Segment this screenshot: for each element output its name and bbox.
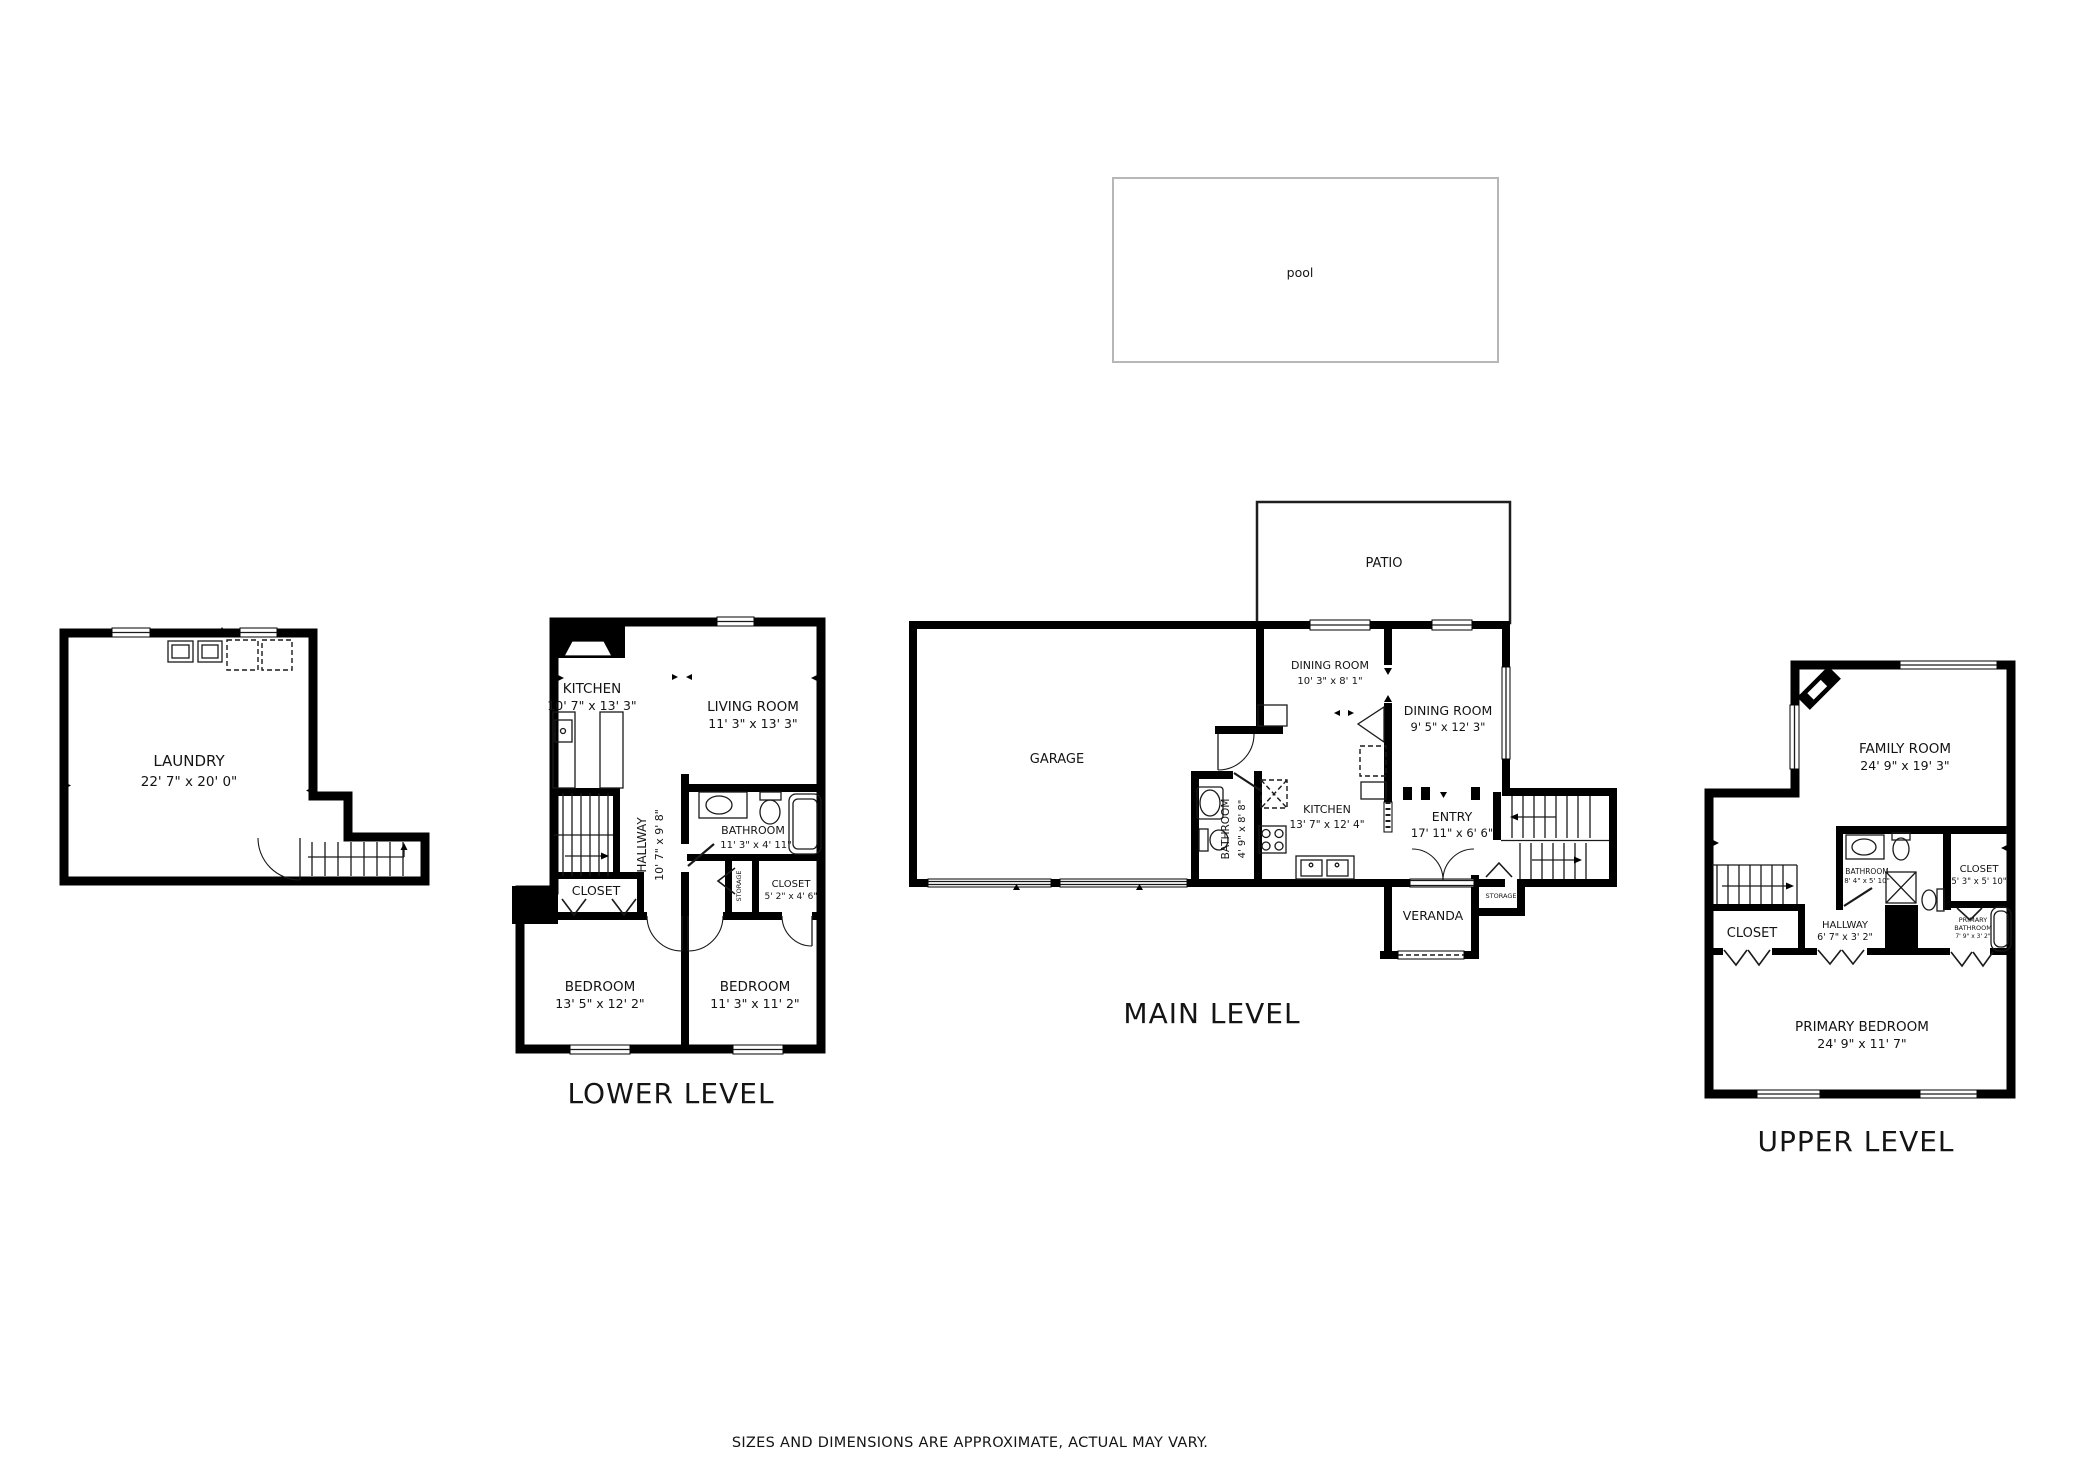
door-tick xyxy=(1713,840,1719,846)
room-label-living-room: LIVING ROOM xyxy=(707,699,799,715)
room-dims-bathroom: 4' 9" x 8' 8" xyxy=(1237,800,1248,859)
room-label-bathroom: BATHROOM xyxy=(1845,867,1888,876)
level-title-upper: UPPER LEVEL xyxy=(1757,1125,1954,1158)
bifold-door-icon xyxy=(1748,950,1770,965)
room-dims-dining2: 9' 5" x 12' 3" xyxy=(1411,720,1486,734)
bathtub-icon xyxy=(789,794,821,854)
bifold-door-icon xyxy=(1951,952,1972,966)
room-label-laundry: LAUNDRY xyxy=(153,752,225,770)
bifold-door-icon xyxy=(1842,950,1864,964)
double-door-icon xyxy=(1412,849,1474,880)
window-icon xyxy=(717,617,754,626)
room-dims-closet2: 5' 2" x 4' 6" xyxy=(765,892,818,902)
room-label-primary-bathroom-2: BATHROOM xyxy=(1954,924,1992,932)
kitchen-sink-icon xyxy=(1296,856,1354,879)
kitchen-counter-icon xyxy=(553,712,623,788)
stairs-icon xyxy=(1501,796,1609,879)
toilet-icon xyxy=(1892,833,1910,860)
room-label-closet2: CLOSET xyxy=(772,879,812,890)
fireplace-icon xyxy=(1797,666,1841,710)
room-label-kitchen: KITCHEN xyxy=(1303,803,1351,816)
main-level-plan: PATIO xyxy=(909,502,1617,1030)
room-label-primary-bedroom: PRIMARY BEDROOM xyxy=(1795,1019,1929,1035)
bifold-door-icon xyxy=(1724,950,1747,965)
room-label-storage: STORAGE xyxy=(1486,892,1517,900)
door-tick xyxy=(1384,668,1392,675)
door-tick xyxy=(1384,695,1392,702)
room-dims-entry: 17' 11" x 6' 6" xyxy=(1411,826,1493,840)
toilet-icon xyxy=(1922,889,1944,911)
door-arc-icon xyxy=(688,916,723,951)
floorplan-drawing: pool LAU xyxy=(0,0,2080,1471)
room-dims-bathroom: 11' 3" x 4' 11" xyxy=(720,840,792,851)
room-dims-laundry: 22' 7" x 20' 0" xyxy=(141,774,238,790)
cased-opening xyxy=(1384,802,1392,832)
door-tick xyxy=(686,674,692,680)
room-dims-kitchen: 10' 7" x 13' 3" xyxy=(547,698,636,713)
stove-icon xyxy=(1259,826,1286,853)
room-dims-closet1: 5' 3" x 5' 10" xyxy=(1951,877,2006,887)
room-label-bathroom: BATHROOM xyxy=(1220,799,1232,860)
room-label-dining2: DINING ROOM xyxy=(1404,703,1493,718)
pool-plan: pool xyxy=(1113,178,1498,362)
room-dims-family-room: 24' 9" x 19' 3" xyxy=(1860,758,1949,773)
stairs-icon xyxy=(308,842,408,876)
room-label-primary-bathroom-1: PRIMARY xyxy=(1959,916,1988,924)
veranda-opening xyxy=(1398,951,1464,959)
room-dims-living-room: 11' 3" x 13' 3" xyxy=(708,716,797,731)
room-label-garage: GARAGE xyxy=(1030,752,1084,767)
room-label-kitchen: KITCHEN xyxy=(563,681,622,697)
floorplan-page: pool LAU xyxy=(0,0,2080,1471)
pool-label: pool xyxy=(1287,265,1314,280)
room-label-hallway: HALLWAY xyxy=(1822,920,1869,931)
window-icon xyxy=(1310,620,1510,759)
stairs-icon xyxy=(1712,865,1797,904)
room-dims-kitchen: 13' 7" x 12' 4" xyxy=(1289,819,1364,831)
room-label-bathroom: BATHROOM xyxy=(721,824,785,837)
appliance-icon xyxy=(1261,780,1287,808)
laundry-plan: LAUNDRY 22' 7" x 20' 0" xyxy=(64,627,425,885)
room-label-entry: ENTRY xyxy=(1432,809,1473,824)
room-dims-bathroom: 8' 4" x 5' 10" xyxy=(1844,877,1890,885)
room-label-bedroom2: BEDROOM xyxy=(720,979,790,995)
toilet-icon xyxy=(760,792,781,824)
door-tick xyxy=(1334,710,1340,716)
fireplace-icon xyxy=(550,618,625,658)
lower-level-plan: KITCHEN 10' 7" x 13' 3" LIVING ROOM 11' … xyxy=(512,617,825,1110)
room-label-hallway: HALLWAY xyxy=(635,817,649,873)
room-label-closet2: CLOSET xyxy=(1727,926,1778,941)
level-title-main: MAIN LEVEL xyxy=(1123,997,1300,1030)
bathroom-sink-icon xyxy=(1846,835,1884,859)
upper-level-plan: FAMILY ROOM 24' 9" x 19' 3" BATHROOM 8' … xyxy=(1709,661,2011,1158)
door-chevron-icon xyxy=(1486,863,1512,877)
room-dims-primary-bedroom: 24' 9" x 11' 7" xyxy=(1817,1036,1906,1051)
door-arc-icon xyxy=(1218,734,1254,770)
corner-cabinet-icon xyxy=(1358,707,1384,742)
level-title-lower: LOWER LEVEL xyxy=(567,1077,774,1110)
room-label-patio: PATIO xyxy=(1366,556,1403,571)
door-tick xyxy=(2001,845,2007,851)
room-dims-dining1: 10' 3" x 8' 1" xyxy=(1297,676,1362,687)
washer-dryer-icon xyxy=(168,640,292,670)
room-label-storage: STORAGE xyxy=(735,871,743,902)
room-dims-hallway: 6' 7" x 3' 2" xyxy=(1817,932,1873,943)
shower-icon xyxy=(1886,872,1916,903)
door-tick xyxy=(1440,792,1447,798)
room-dims-bedroom1: 13' 5" x 12' 2" xyxy=(555,996,644,1011)
stairs-icon xyxy=(554,793,613,876)
room-label-closet1: CLOSET xyxy=(1960,864,2000,875)
door-tick xyxy=(1348,710,1354,716)
door-leaf-icon xyxy=(1844,888,1872,906)
door-tick xyxy=(672,674,678,680)
room-dims-primary-bathroom: 7' 9" x 3' 2" xyxy=(1955,933,1991,940)
room-label-veranda: VERANDA xyxy=(1403,908,1464,923)
door-tick xyxy=(811,675,817,681)
door-arc-icon xyxy=(647,916,682,951)
room-label-dining1: DINING ROOM xyxy=(1291,659,1369,672)
room-dims-bedroom2: 11' 3" x 11' 2" xyxy=(710,996,799,1011)
disclaimer-text: SIZES AND DIMENSIONS ARE APPROXIMATE, AC… xyxy=(732,1435,1208,1451)
room-label-bedroom1: BEDROOM xyxy=(565,979,635,995)
bathroom-sink-icon xyxy=(699,792,747,818)
room-label-closet: CLOSET xyxy=(572,883,621,898)
bifold-door-icon xyxy=(1818,950,1841,964)
room-dims-hallway: 10' 7" x 9' 8" xyxy=(653,809,666,881)
door-arc-icon xyxy=(782,916,812,946)
room-label-family-room: FAMILY ROOM xyxy=(1859,741,1951,757)
fridge-icon xyxy=(1360,746,1386,776)
entry-door-opening xyxy=(1410,879,1474,887)
door-arc-icon xyxy=(258,838,300,880)
counter-icon xyxy=(1361,782,1386,799)
